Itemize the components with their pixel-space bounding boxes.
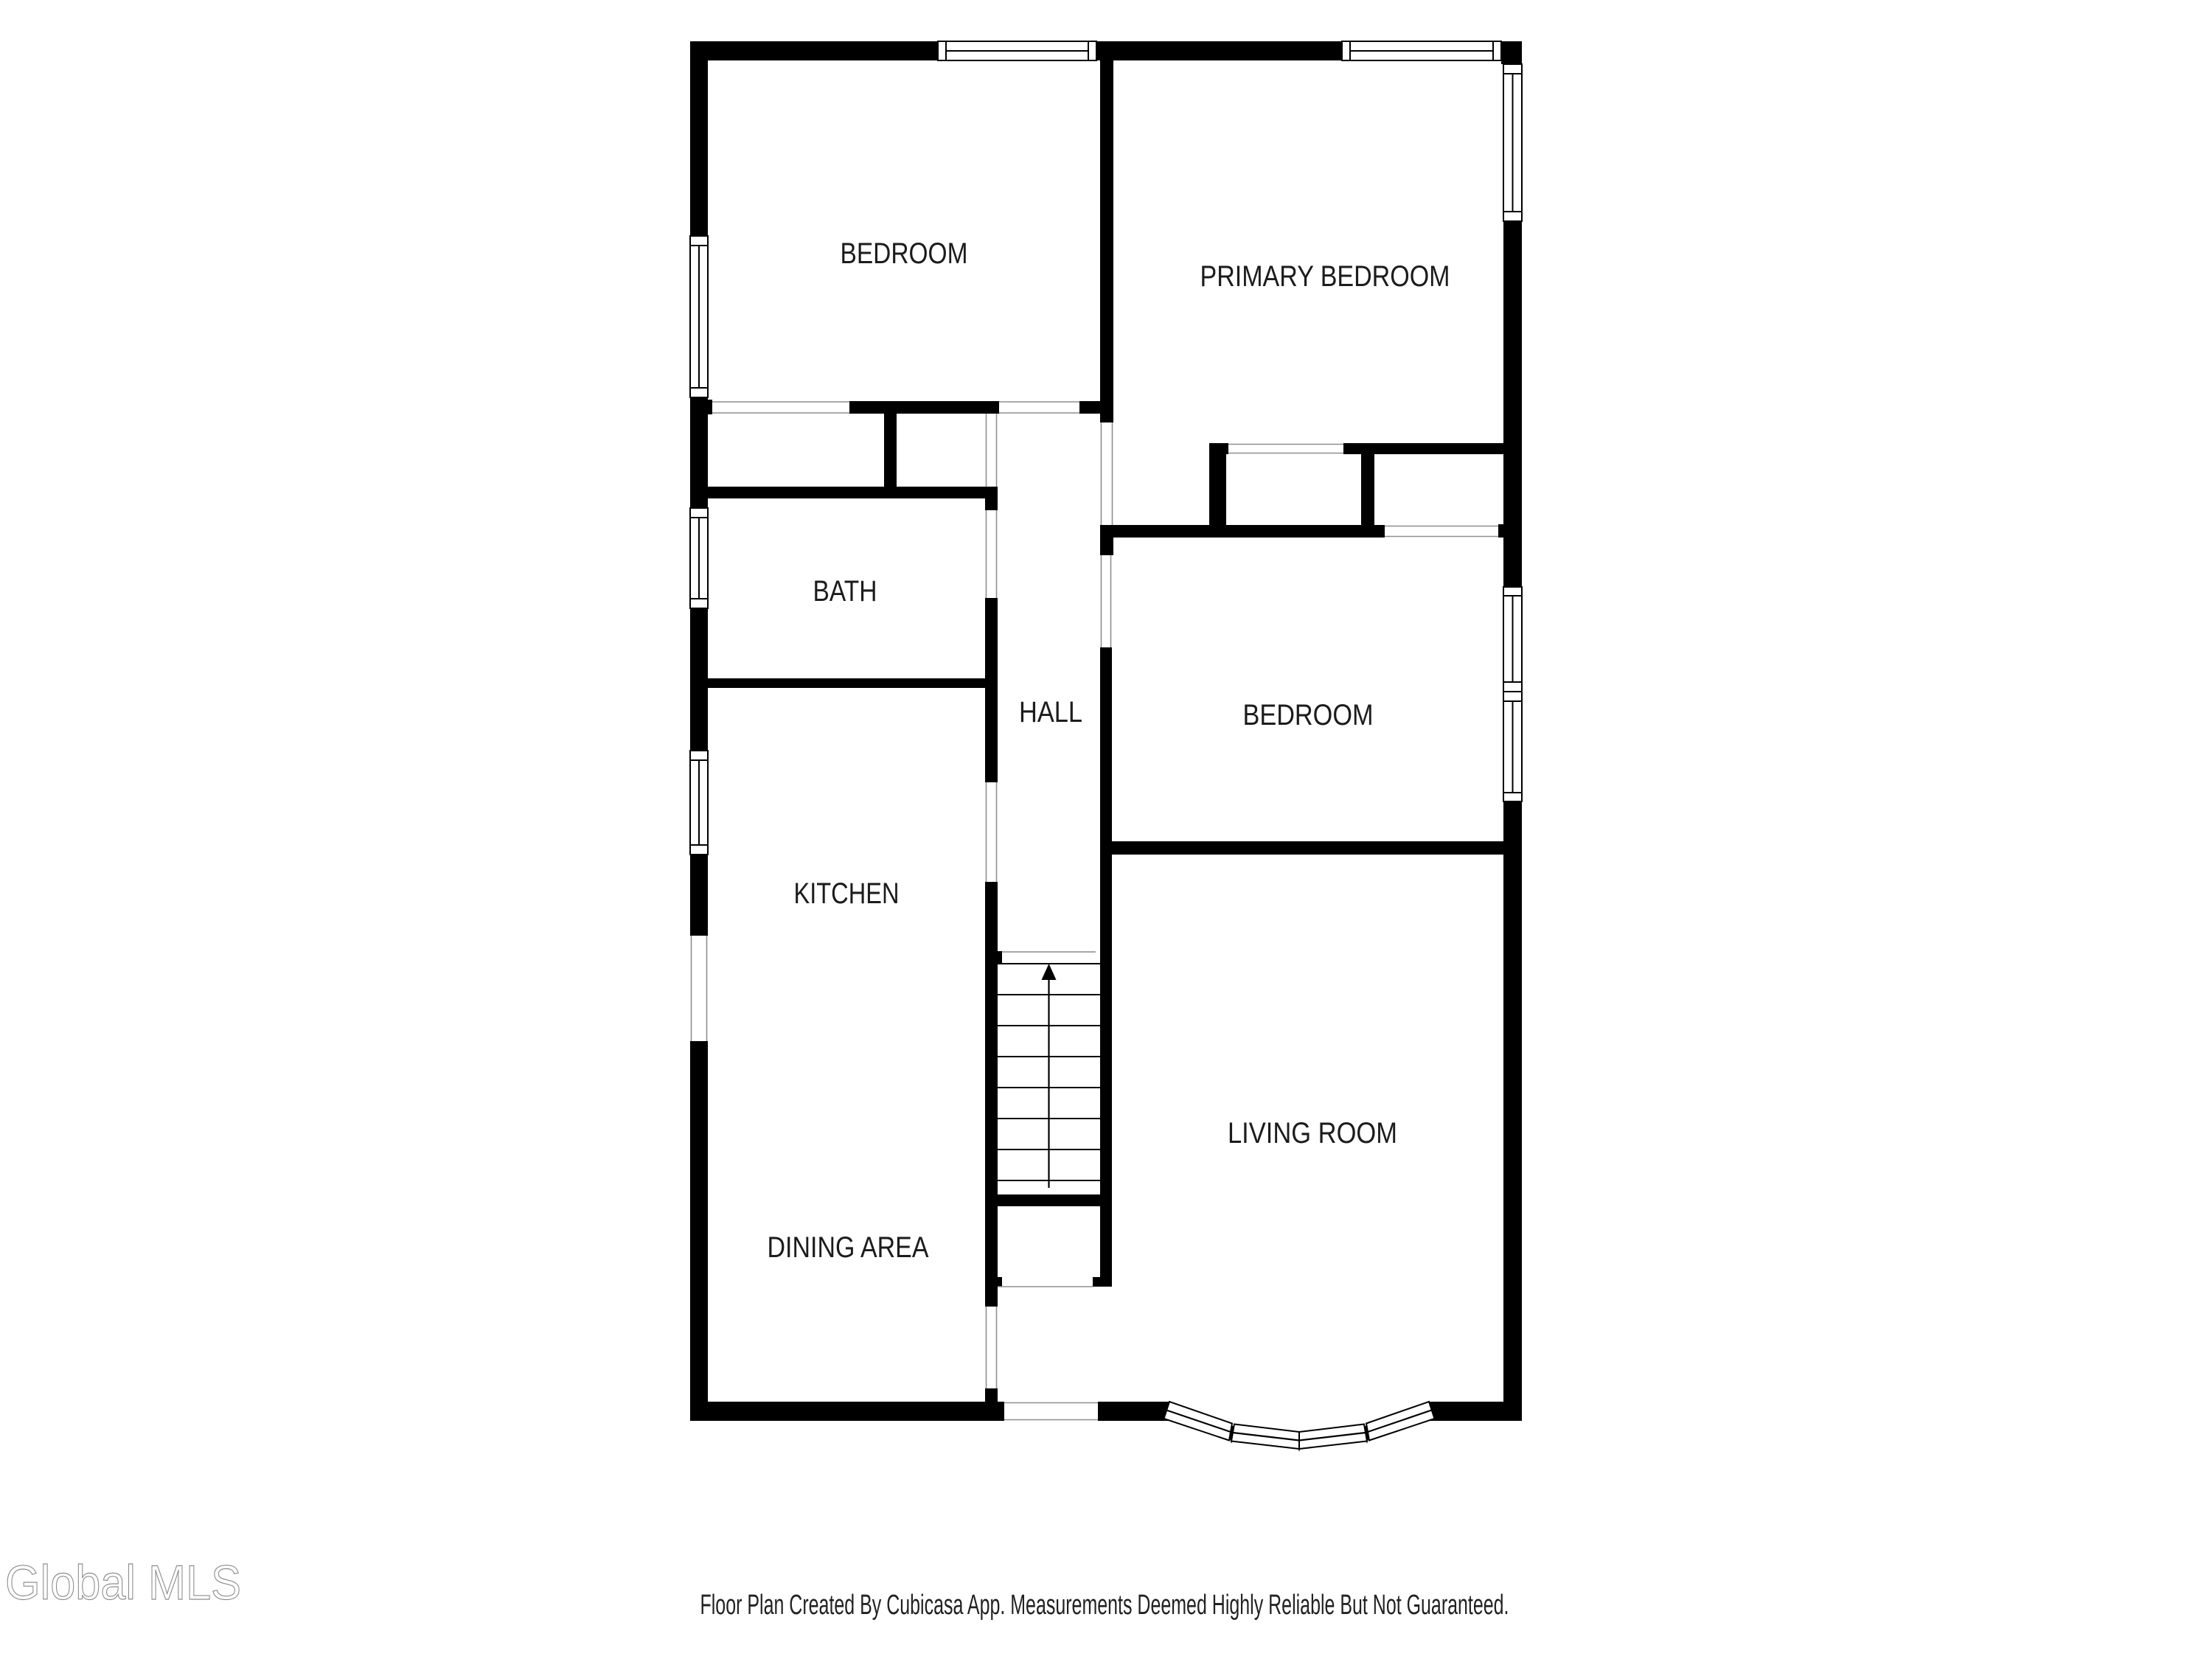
svg-text:PRIMARY BEDROOM: PRIMARY BEDROOM (1200, 260, 1450, 293)
svg-text:BEDROOM: BEDROOM (1243, 699, 1374, 731)
svg-text:HALL: HALL (1019, 696, 1082, 728)
svg-text:DINING AREA: DINING AREA (768, 1231, 929, 1264)
svg-text:KITCHEN: KITCHEN (794, 877, 900, 910)
svg-text:Floor Plan Created By Cubicasa: Floor Plan Created By Cubicasa App. Meas… (700, 1590, 1509, 1621)
svg-text:BEDROOM: BEDROOM (841, 237, 968, 270)
svg-text:BATH: BATH (813, 575, 877, 608)
svg-text:Global MLS: Global MLS (5, 1555, 241, 1610)
svg-text:LIVING ROOM: LIVING ROOM (1228, 1117, 1397, 1150)
